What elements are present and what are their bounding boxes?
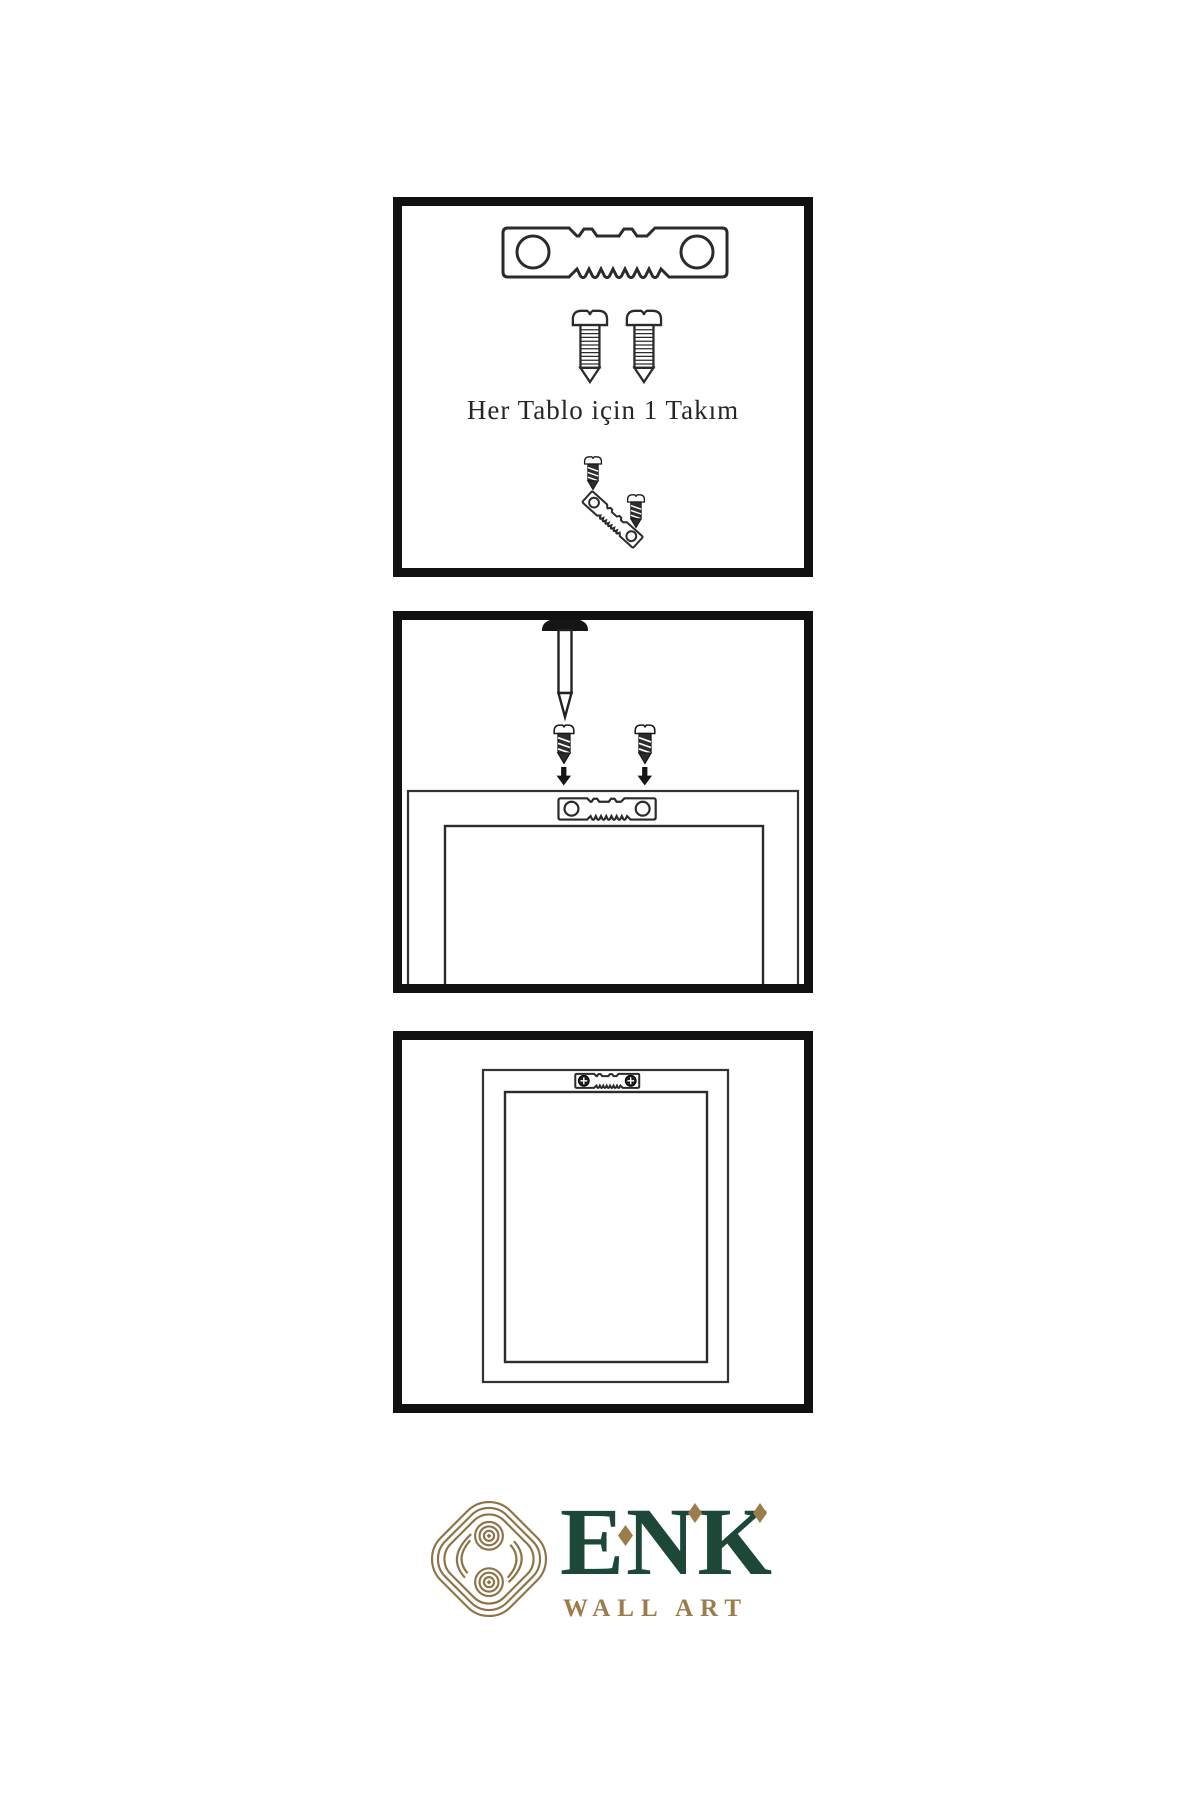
brand-tagline: WALL ART	[560, 1595, 748, 1623]
kit-caption: Her Tablo için 1 Takım	[402, 395, 804, 426]
screw-icon	[628, 495, 645, 528]
brand-name-text: ENK	[560, 1488, 774, 1595]
brand-lockup: ENK WALL ART	[0, 1494, 1200, 1623]
sawtooth-hanger-icon	[503, 228, 727, 278]
sawtooth-hanger-icon	[558, 798, 655, 820]
screw-icon	[585, 457, 602, 490]
instruction-sheet: Her Tablo için 1 Takım	[0, 0, 1200, 1800]
step-2-panel	[393, 611, 813, 993]
brand-text-block: ENK WALL ART	[560, 1494, 774, 1623]
knot-logo-icon	[426, 1496, 552, 1622]
brand-name: ENK	[560, 1494, 774, 1590]
step-1-panel: Her Tablo için 1 Takım	[393, 197, 813, 577]
phillips-screw-head-icon	[625, 1075, 636, 1086]
hardware-kit-illustration	[402, 206, 804, 568]
frame-inner-board-icon	[505, 1092, 707, 1362]
screw-icon	[554, 725, 574, 763]
step-3-panel	[393, 1031, 813, 1413]
mounting-illustration	[402, 620, 804, 984]
arrow-down-icon	[557, 767, 572, 785]
frame-inner-board-icon	[445, 826, 763, 984]
screw-icon	[573, 311, 607, 382]
hanging-illustration	[402, 1040, 804, 1404]
nail-icon	[542, 620, 588, 717]
screw-icon	[635, 725, 655, 763]
screw-icon	[627, 311, 661, 382]
phillips-screw-head-icon	[578, 1075, 589, 1086]
arrow-down-icon	[638, 767, 653, 785]
